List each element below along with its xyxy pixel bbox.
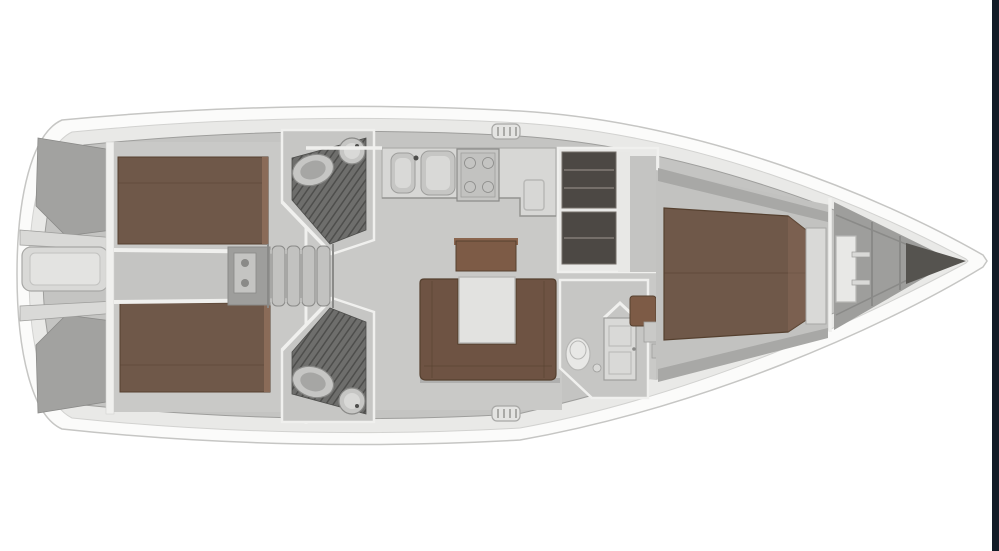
burner: [465, 158, 476, 169]
locker-access-panel: [836, 236, 856, 302]
berth-edge-highlight: [264, 303, 270, 392]
aft-bulkhead: [106, 142, 114, 414]
screenshot-canvas: [0, 0, 999, 551]
companionway-step: [287, 246, 300, 306]
galley-sink-large-bowl: [426, 156, 450, 190]
swim-platform-hatch: [30, 253, 100, 285]
yacht-floorplan: [0, 0, 999, 551]
galley-sink-small-bowl: [395, 158, 411, 188]
aft-cabin-starboard: [114, 300, 306, 424]
burner: [483, 158, 494, 169]
island-berth: [664, 208, 806, 340]
companionway: [228, 244, 333, 308]
salon-table: [459, 277, 515, 343]
aft-cabin-port: [114, 130, 306, 252]
engine-detail: [241, 259, 249, 267]
berth-foot-highlight: [788, 216, 806, 332]
aft-cabin-starboard-berth: [120, 303, 270, 392]
wardrobe-gray-panel: [630, 156, 656, 272]
door-handle: [632, 347, 636, 351]
wardrobe: [558, 148, 658, 272]
burner: [465, 182, 476, 193]
sideboard: [456, 241, 516, 271]
companionway-step: [272, 246, 285, 306]
galley-faucet: [414, 156, 419, 161]
panel-hinge: [852, 252, 870, 257]
foot-cabinet: [806, 228, 826, 324]
companionway-step: [302, 246, 315, 306]
window-edge-bar: [992, 0, 999, 551]
panel-hinge: [852, 280, 870, 285]
companionway-step: [317, 246, 330, 306]
wardrobe-side-wall: [618, 152, 630, 272]
toilet: [566, 338, 590, 370]
head-cup: [593, 364, 601, 372]
entry-seat: [630, 296, 656, 326]
berth-edge-highlight: [262, 157, 268, 244]
engine-detail: [241, 279, 249, 287]
faucet: [355, 404, 359, 408]
burner: [483, 182, 494, 193]
aft-cabin-port-berth: [118, 157, 268, 244]
wardrobe-shelves-upper: [562, 152, 616, 208]
